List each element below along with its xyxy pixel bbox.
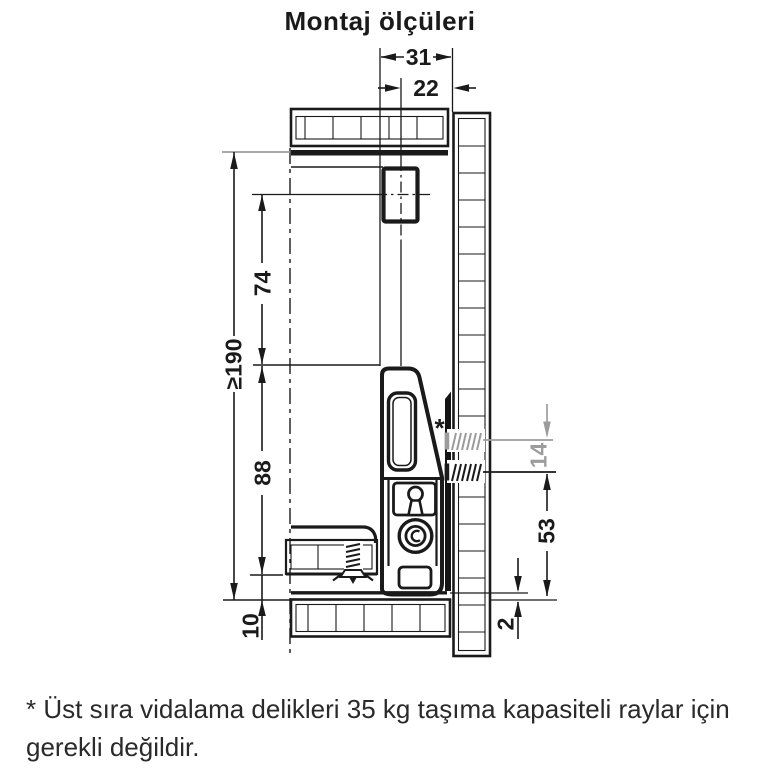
drawer-back-rail-bar	[291, 150, 448, 156]
cabinet-top-panel	[291, 109, 448, 146]
dim-label-190: ≥190	[221, 339, 247, 390]
dim-label-74: 74	[250, 271, 276, 297]
dim-label-22: 22	[413, 75, 439, 101]
dim-22: 22	[378, 75, 476, 101]
asterisk-marker: *	[434, 413, 445, 443]
mounting-bracket	[445, 392, 451, 592]
footnote: * Üst sıra vidalama delikleri 35 kg taşı…	[26, 690, 766, 766]
cabinet-bottom-panel	[291, 600, 450, 637]
dim-label-31: 31	[406, 44, 432, 70]
dim-2: 2	[493, 558, 522, 639]
dim-label-10: 10	[238, 613, 264, 639]
dim-88: 88	[250, 366, 276, 574]
dim-31: 31	[381, 44, 452, 70]
footnote-line-2: gerekli değildir.	[26, 728, 766, 766]
dim-label-53: 53	[534, 518, 560, 544]
page: { "title": "Montaj ölçüleri", "diagram":…	[0, 0, 774, 774]
cabinet-side-panel	[454, 113, 491, 656]
keyhole-pin	[409, 487, 423, 501]
runner-foot	[399, 567, 431, 588]
drawer-side-profile	[291, 369, 447, 595]
footnote-line-1: * Üst sıra vidalama delikleri 35 kg taşı…	[26, 690, 766, 728]
dim-53: 53	[534, 474, 560, 597]
dim-label-88: 88	[250, 460, 276, 486]
dim-190: ≥190	[221, 152, 247, 600]
dim-label-2: 2	[493, 618, 519, 631]
keyhole-stem	[409, 501, 423, 516]
dim-10: 10	[238, 575, 266, 640]
drawer-bottom-panel	[286, 540, 377, 574]
dim-label-14: 14	[526, 443, 552, 469]
dim-14-optional: 14	[526, 404, 552, 468]
dim-74: 74	[250, 195, 276, 365]
screw-bottom	[333, 541, 373, 584]
roller-wheel	[399, 520, 432, 553]
mounting-dimensions-drawing: 31 22 ≥190 74 88 10 14	[0, 0, 774, 774]
